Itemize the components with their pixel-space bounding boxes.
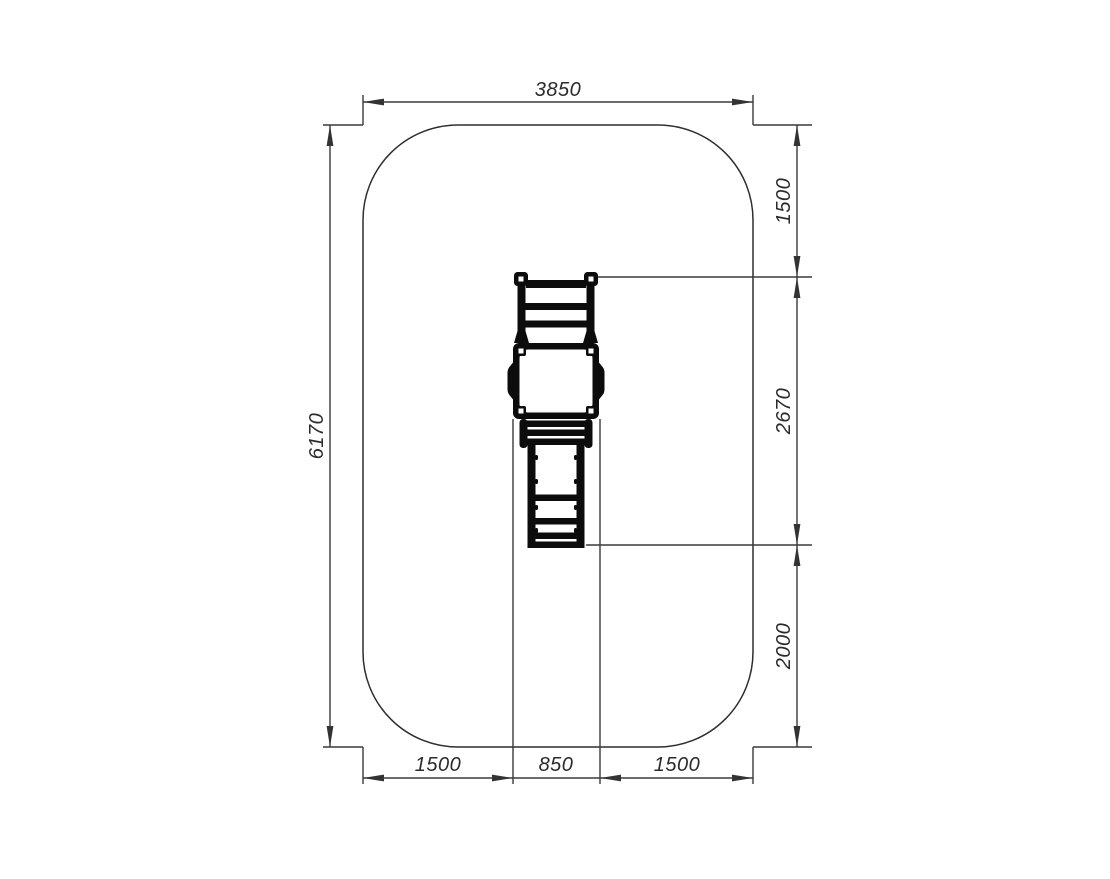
entry-step	[526, 430, 586, 437]
post-hole	[589, 349, 594, 354]
rail-lug	[535, 528, 538, 533]
dim-total-height: 6170	[306, 125, 333, 747]
dim-label-bottom-left: 1500	[415, 754, 462, 776]
rail-right	[587, 285, 595, 333]
arrowhead-right	[732, 99, 753, 106]
arrowhead-up	[794, 277, 801, 298]
dim-label-right-middle: 2670	[773, 388, 795, 436]
arrowhead-right	[732, 775, 753, 782]
rail-lug	[574, 528, 577, 533]
chute-rail-left	[528, 440, 536, 547]
plan-drawing: 3850 6170 1500 2670 2000 1500 850 1500	[0, 0, 1110, 879]
platform-floor	[520, 350, 593, 413]
rail-lug	[535, 505, 538, 510]
dim-bottom-chain: 1500 850 1500	[363, 754, 753, 781]
dim-label-total-width: 3850	[535, 79, 582, 101]
rail-lug	[535, 479, 538, 484]
side-panel-left	[508, 363, 514, 400]
chute-end-bar	[528, 533, 585, 540]
rail-left	[518, 285, 526, 333]
dim-label-bottom-right: 1500	[654, 754, 701, 776]
rail-flare-right	[583, 331, 598, 343]
rail-lug	[574, 505, 577, 510]
dim-label-right-top: 1500	[773, 178, 795, 225]
dim-total-width: 3850	[363, 79, 753, 105]
arrowhead-up	[327, 125, 334, 146]
handrail-ladder	[514, 272, 598, 343]
arrowhead-up	[794, 545, 801, 566]
ladder-rung	[525, 321, 587, 328]
rail-lug	[574, 455, 577, 460]
equipment-plan	[508, 272, 605, 548]
side-panel-right	[599, 363, 605, 400]
dim-label-bottom-center: 850	[539, 754, 574, 776]
chute-crossbar	[534, 495, 578, 502]
post-hole	[519, 409, 524, 414]
chute-end-bar	[528, 542, 585, 549]
drawing-sheet: 3850 6170 1500 2670 2000 1500 850 1500	[0, 0, 1110, 879]
entry-step	[526, 421, 586, 428]
dim-label-right-bottom: 2000	[773, 623, 795, 671]
platform	[508, 343, 605, 419]
chute-crossbar	[534, 518, 578, 525]
slide-chute	[528, 440, 585, 548]
arrowhead-down	[327, 726, 334, 747]
dim-right-chain: 1500 2670 2000	[773, 125, 800, 747]
arrowhead-right	[492, 775, 513, 782]
rail-lug	[535, 455, 538, 460]
arrowhead-left	[363, 99, 384, 106]
chute-rail-right	[577, 440, 585, 547]
post-hole	[519, 349, 524, 354]
rail-flare-left	[514, 331, 529, 343]
arrowhead-down	[794, 726, 801, 747]
handrail-bar	[526, 280, 586, 288]
arrowhead-left	[600, 775, 621, 782]
arrowhead-down	[794, 524, 801, 545]
rail-lug	[574, 479, 577, 484]
arrowhead-up	[794, 125, 801, 146]
post-hole	[589, 409, 594, 414]
arrowhead-left	[363, 775, 384, 782]
dim-label-total-height: 6170	[306, 413, 328, 460]
arrowhead-down	[794, 256, 801, 277]
ladder-rung	[525, 303, 587, 310]
post-hole	[589, 277, 594, 282]
post-hole	[519, 277, 524, 282]
